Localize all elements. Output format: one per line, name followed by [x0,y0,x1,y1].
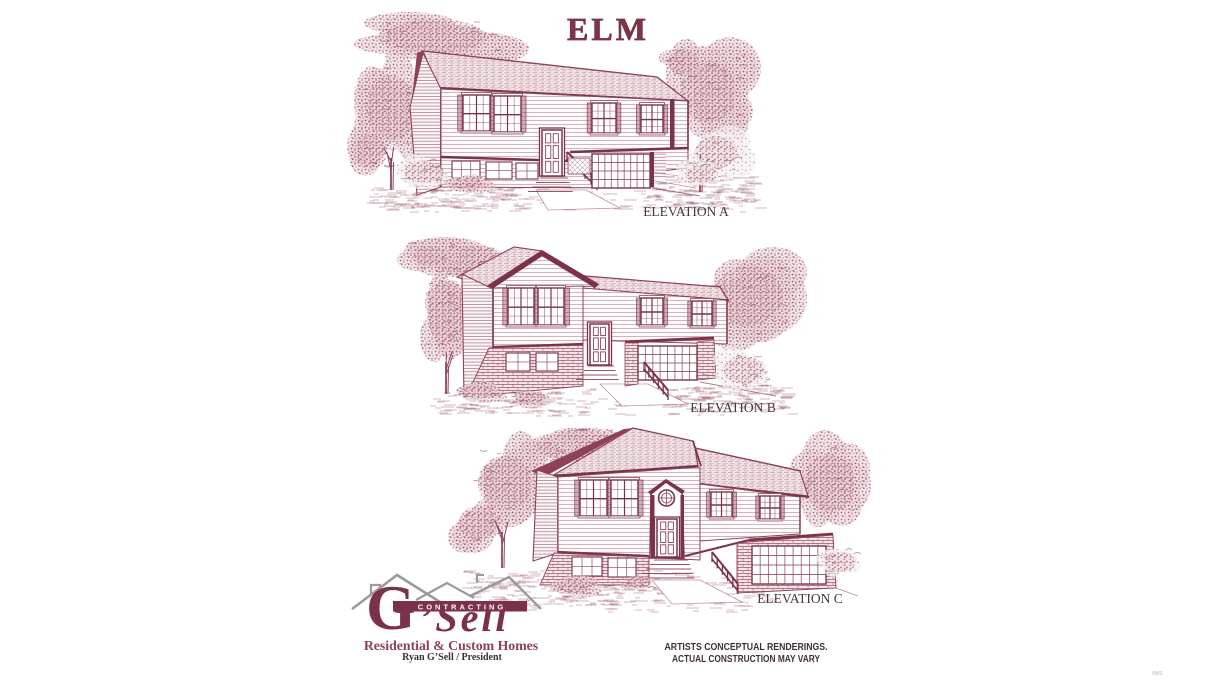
svg-text:G: G [366,572,416,643]
svg-text:ELEVATION C: ELEVATION C [757,591,843,606]
svg-text:ELM: ELM [567,11,649,47]
svg-text:Ryan G’Sell / President: Ryan G’Sell / President [402,652,502,663]
svg-text:Residential & Custom Homes: Residential & Custom Homes [364,638,539,653]
svg-text:CONTRACTING: CONTRACTING [418,603,506,612]
svg-text:VMS: VMS [1152,671,1164,677]
svg-text:ACTUAL CONSTRUCTION MAY VARY: ACTUAL CONSTRUCTION MAY VARY [672,653,820,665]
svg-text:ELEVATION A: ELEVATION A [643,204,729,219]
svg-text:ELEVATION B: ELEVATION B [690,400,776,415]
svg-text:ARTISTS CONCEPTUAL RENDERINGS.: ARTISTS CONCEPTUAL RENDERINGS. [665,641,828,653]
